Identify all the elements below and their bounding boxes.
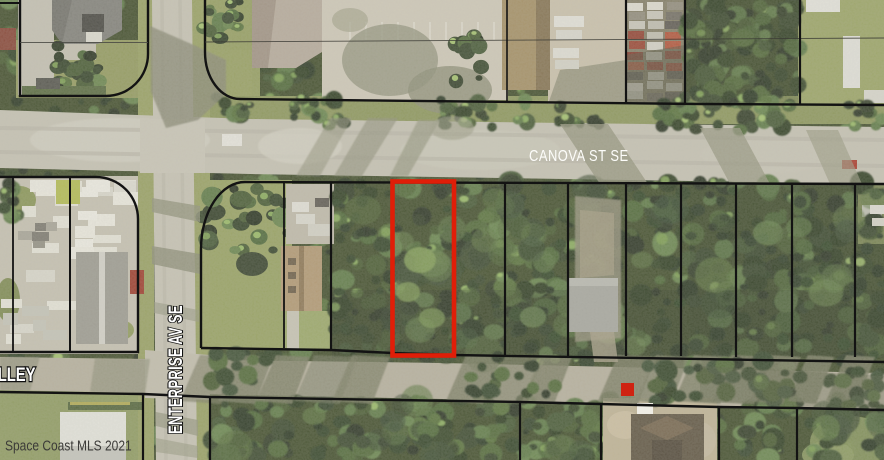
svg-text:Space Coast MLS 2021: Space Coast MLS 2021 xyxy=(5,437,132,454)
svg-text:CANOVA ST SE: CANOVA ST SE xyxy=(529,148,629,166)
svg-text:ALLEY: ALLEY xyxy=(0,364,36,385)
svg-text:ENTERPRISE AV SE: ENTERPRISE AV SE xyxy=(166,305,187,434)
